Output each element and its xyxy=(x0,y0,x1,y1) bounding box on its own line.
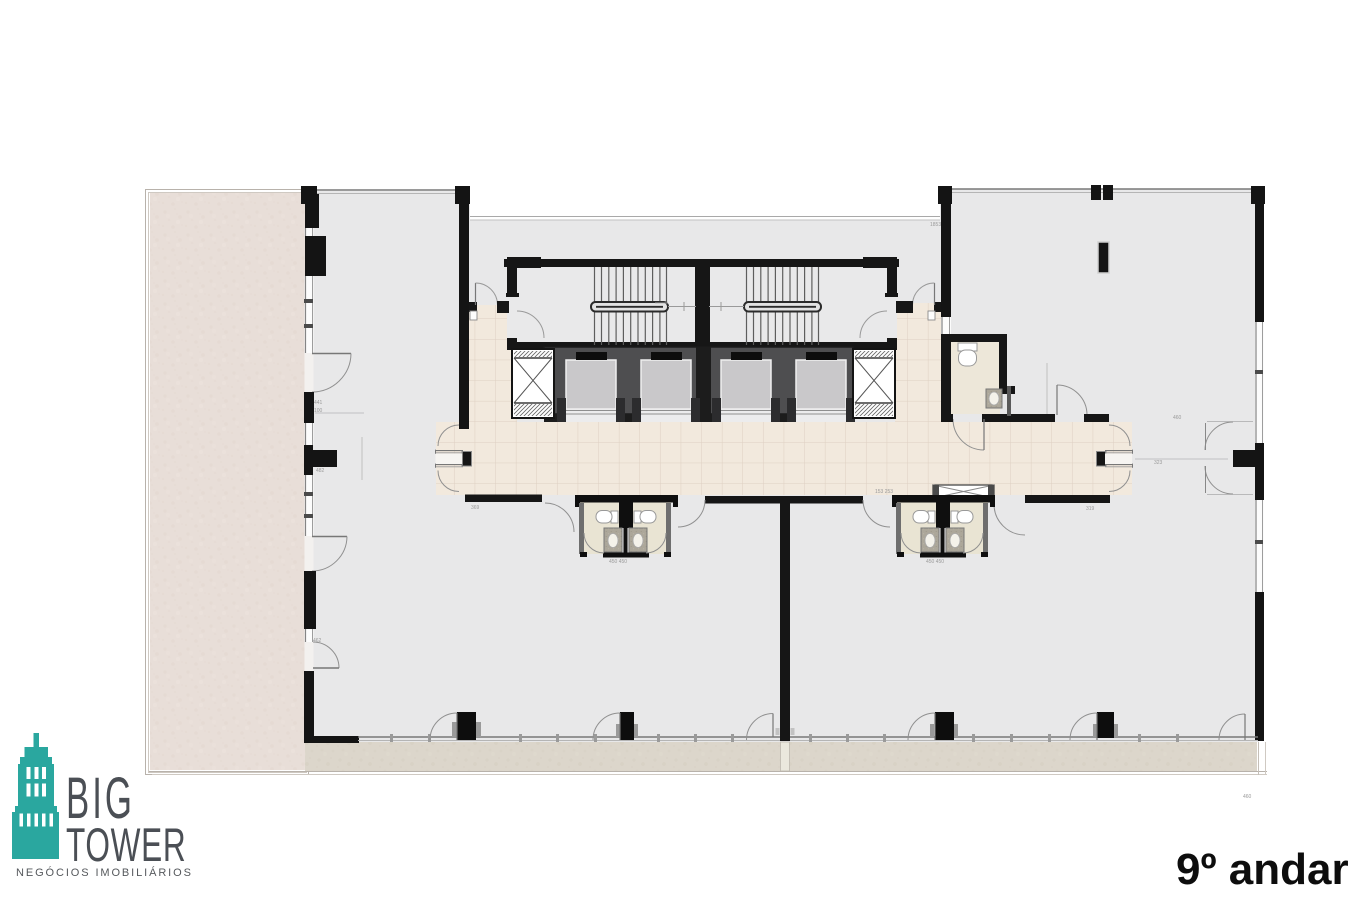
svg-text:1853: 1853 xyxy=(930,222,941,228)
svg-text:9º andar: 9º andar xyxy=(1176,845,1349,894)
svg-text:100: 100 xyxy=(314,408,323,414)
svg-text:NEGÓCIOS IMOBILIÁRIOS: NEGÓCIOS IMOBILIÁRIOS xyxy=(16,866,193,879)
svg-text:450 450: 450 450 xyxy=(609,559,627,565)
svg-text:460: 460 xyxy=(1173,415,1182,421)
svg-text:462: 462 xyxy=(313,638,322,644)
svg-text:323: 323 xyxy=(1154,460,1163,466)
svg-text:450 450: 450 450 xyxy=(926,559,944,565)
svg-text:TOWER: TOWER xyxy=(66,820,186,872)
svg-text:482: 482 xyxy=(316,468,325,474)
svg-text:441: 441 xyxy=(314,400,323,406)
svg-text:460: 460 xyxy=(1243,794,1252,800)
svg-text:369: 369 xyxy=(471,505,480,511)
svg-text:319: 319 xyxy=(1086,506,1095,512)
svg-text:153 253: 153 253 xyxy=(875,489,893,495)
